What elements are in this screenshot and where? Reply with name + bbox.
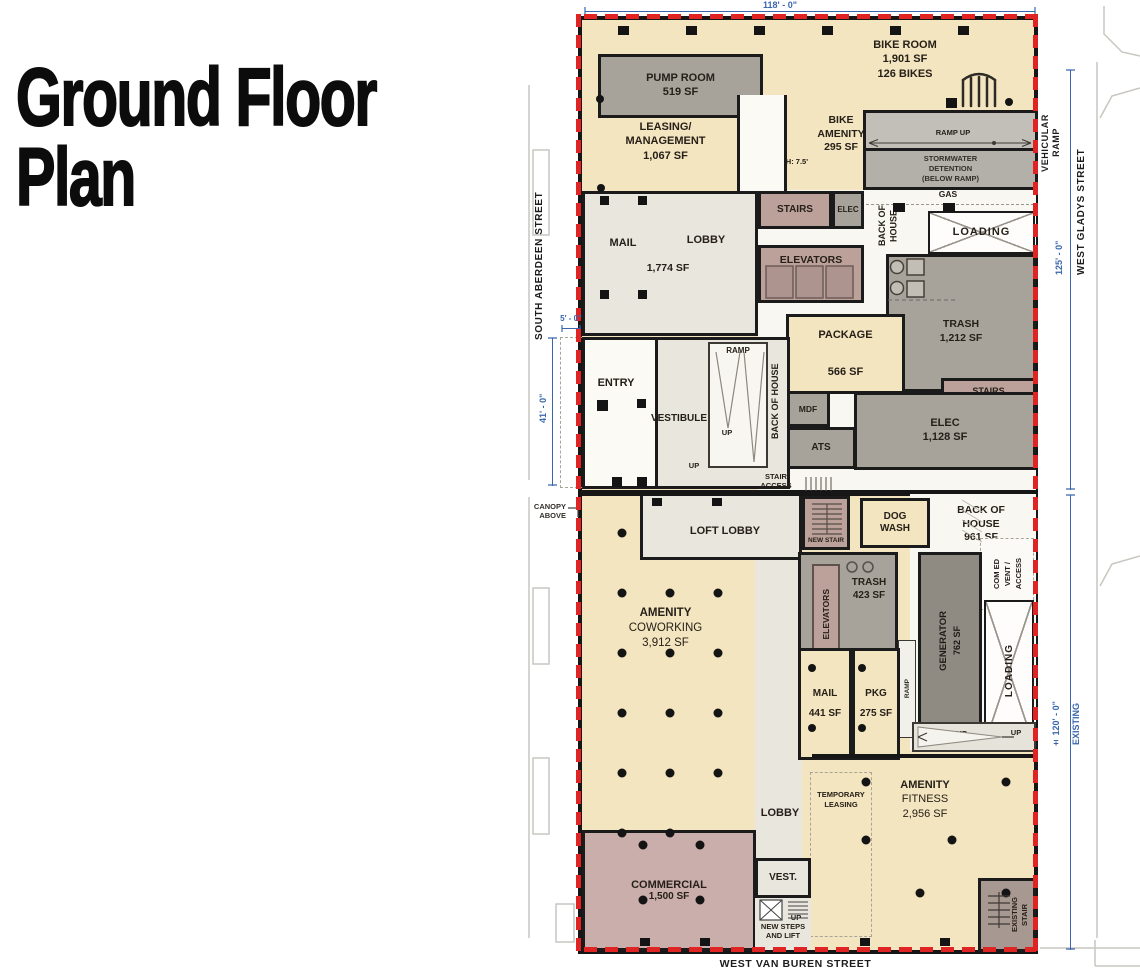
- street-left-label: SOUTH ABERDEEN STREET: [534, 160, 545, 340]
- street-right-label: WEST GLADYS STREET: [1076, 125, 1087, 275]
- dim-entry-label: 41' - 0": [538, 382, 550, 434]
- dim-south-label: ± 120' - 0": [1051, 693, 1063, 757]
- property-line-top: [584, 14, 1036, 19]
- canopy-label: CANOPY ABOVE: [516, 502, 566, 520]
- vehicular-ramp-line1: VEHICULAR: [1040, 114, 1050, 172]
- canopy-line1: CANOPY: [516, 502, 566, 511]
- dim-line-offset: [562, 328, 580, 329]
- page-title: Ground Floor Plan: [16, 58, 376, 219]
- page-title-line1: Ground Floor: [16, 58, 376, 138]
- street-bottom-label: WEST VAN BUREN STREET: [688, 958, 903, 970]
- canopy-line2: ABOVE: [516, 511, 566, 520]
- page-title-line2: Plan: [16, 138, 376, 218]
- property-line-bottom: [584, 947, 1036, 952]
- dim-offset-label: 5' - 0": [550, 314, 592, 324]
- dim-top-label: 118' - 0": [735, 0, 825, 12]
- property-line-left: [576, 14, 581, 952]
- property-line-right: [1033, 14, 1038, 952]
- dim-line-entry: [552, 338, 553, 486]
- vehicular-ramp-label: VEHICULAR RAMP: [1040, 100, 1061, 185]
- vehicular-ramp-line2: RAMP: [1051, 128, 1061, 157]
- dim-north-label: 125' - 0": [1054, 228, 1066, 288]
- existing-label: EXISTING: [1071, 696, 1083, 752]
- dim-line-north: [1070, 70, 1071, 490]
